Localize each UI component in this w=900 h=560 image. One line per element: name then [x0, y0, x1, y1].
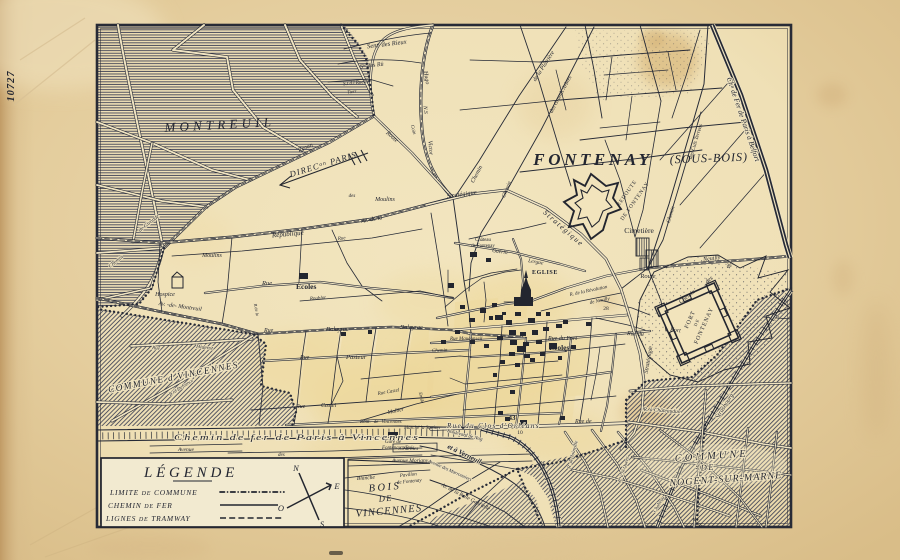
svg-text:FONTENAY: FONTENAY — [532, 150, 652, 169]
svg-text:LIGNES DE TRAMWAY: LIGNES DE TRAMWAY — [105, 514, 190, 523]
svg-text:LIMITE DE COMMUNE: LIMITE DE COMMUNE — [109, 488, 197, 497]
svg-text:Moulins: Moulins — [201, 253, 222, 259]
svg-text:E: E — [333, 481, 340, 491]
svg-text:Tierr: Tierr — [347, 89, 357, 95]
svg-text:Hospice: Hospice — [154, 292, 175, 298]
svg-text:CHEMIN DE FER: CHEMIN DE FER — [108, 501, 173, 510]
svg-text:Écoles: Écoles — [296, 281, 316, 291]
svg-text:Cimetière: Cimetière — [624, 226, 654, 235]
svg-text:Rue: Rue — [263, 328, 274, 334]
svg-text:Boul.deVincennes: Boul.deVincennes — [360, 420, 402, 425]
svg-text:Marché la Station: Marché la Station — [403, 426, 440, 431]
svg-text:Rue du: Rue du — [626, 331, 644, 338]
svg-text:Château: Château — [475, 238, 491, 243]
svg-text:Dalayrac: Dalayrac — [325, 327, 349, 333]
svg-text:Rue: Rue — [299, 355, 310, 361]
svg-text:Route: Route — [639, 273, 655, 280]
svg-text:O: O — [278, 503, 284, 513]
svg-text:des: des — [349, 194, 356, 199]
svg-text:DE: DE — [377, 493, 393, 504]
svg-text:28: 28 — [603, 306, 609, 312]
svg-text:(SOUS-BOIS): (SOUS-BOIS) — [669, 150, 748, 167]
svg-text:Chemin de fer de Paris à Vince: Chemin de fer de Paris à Vincennes — [174, 432, 420, 442]
svg-text:N.S: N.S — [422, 105, 429, 115]
svg-text:Dalayrac: Dalayrac — [399, 325, 423, 331]
svg-text:Rue Mauconseil: Rue Mauconseil — [449, 337, 483, 342]
svg-text:10727: 10727 — [6, 70, 17, 101]
svg-text:Rue de: Rue de — [574, 419, 592, 425]
svg-text:Avenue: Avenue — [177, 447, 194, 453]
svg-text:Pasteur: Pasteur — [345, 354, 367, 361]
svg-text:Gare de: Gare de — [385, 440, 402, 445]
svg-text:Rue: Rue — [151, 346, 161, 352]
svg-text:Moulins: Moulins — [374, 197, 395, 203]
svg-text:de Fontenay: de Fontenay — [471, 244, 495, 249]
svg-text:Rue: Rue — [337, 236, 347, 242]
svg-text:43: 43 — [509, 414, 517, 422]
svg-text:Rue: Rue — [261, 280, 272, 287]
svg-text:Fontenay s/Bois: Fontenay s/Bois — [381, 446, 414, 451]
svg-text:Écoles: Écoles — [549, 342, 569, 352]
svg-text:EGLISE: EGLISE — [532, 270, 558, 276]
svg-text:Castei: Castei — [321, 403, 337, 409]
svg-text:Rue: Rue — [295, 404, 306, 410]
svg-text:Rue du Fort: Rue du Fort — [547, 336, 577, 342]
svg-text:Chemin: Chemin — [432, 348, 448, 354]
svg-text:10: 10 — [517, 430, 523, 436]
svg-text:LÉGENDE: LÉGENDE — [143, 464, 238, 481]
svg-text:Rue du Clos d'Orléans: Rue du Clos d'Orléans — [446, 422, 540, 430]
